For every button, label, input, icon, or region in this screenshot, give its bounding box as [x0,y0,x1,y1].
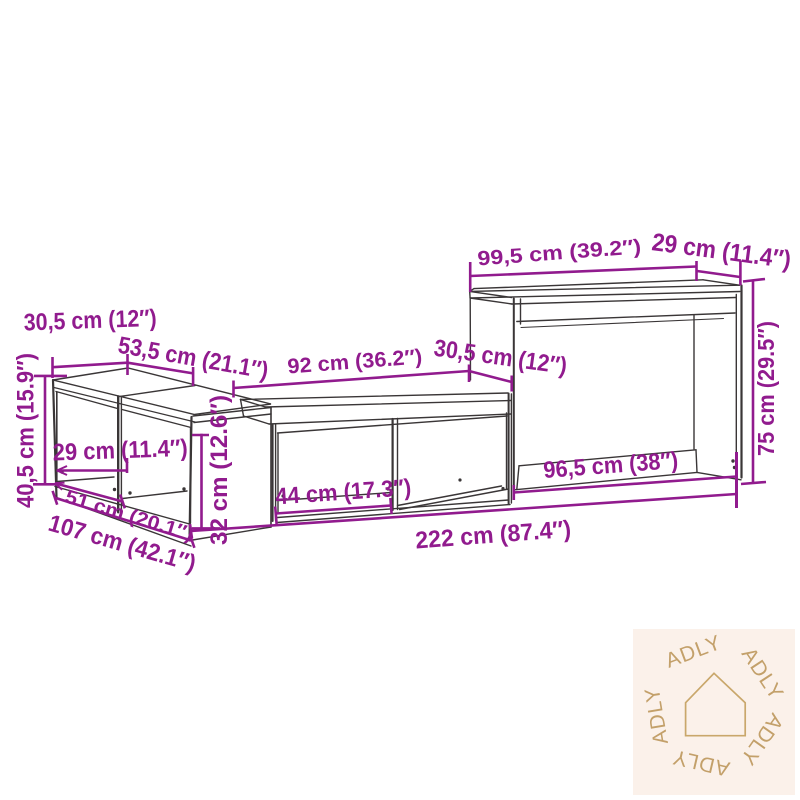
svg-text:29 cm (11.4″): 29 cm (11.4″) [52,435,188,467]
svg-text:30,5 cm (12″): 30,5 cm (12″) [23,305,157,337]
svg-text:40,5 cm (15.9″): 40,5 cm (15.9″) [13,353,40,508]
svg-text:75 cm (29.5″): 75 cm (29.5″) [753,321,779,456]
svg-text:32 cm (12.6″): 32 cm (12.6″) [206,395,233,545]
